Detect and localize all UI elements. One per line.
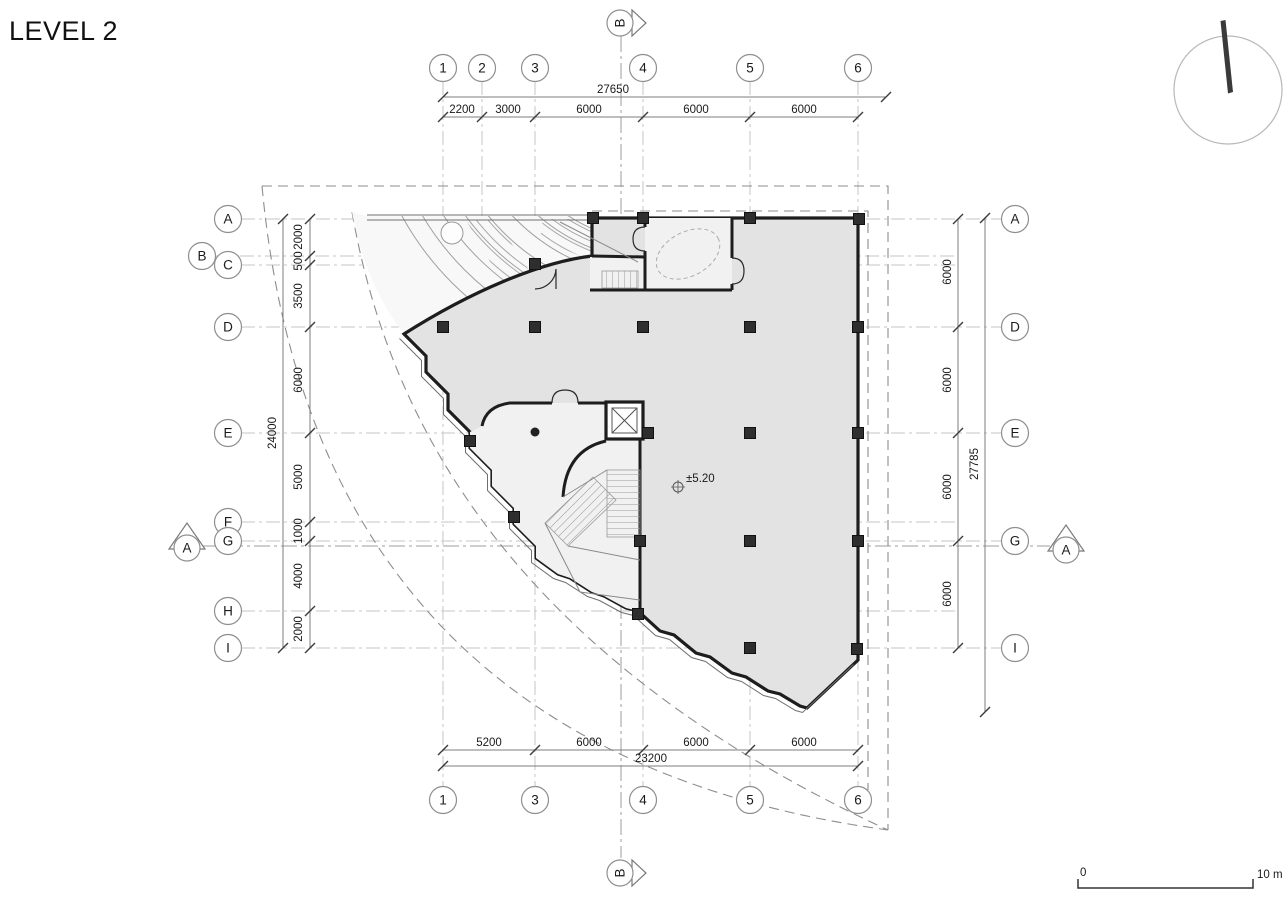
grid-bubble-right-I: I — [1002, 635, 1029, 662]
grid-bubble-right-E: E — [1002, 420, 1029, 447]
svg-text:6000: 6000 — [942, 367, 954, 393]
section-marker-a-right: A — [1048, 525, 1084, 563]
level-value: ±5.20 — [686, 473, 715, 485]
grid-bubble-right-A: A — [1002, 206, 1029, 233]
terrace-column — [441, 222, 463, 244]
svg-text:500: 500 — [293, 251, 305, 270]
svg-text:6000: 6000 — [791, 104, 817, 116]
svg-text:1: 1 — [439, 61, 447, 76]
section-marker-a-left: A — [169, 523, 205, 561]
svg-text:E: E — [223, 426, 232, 441]
grid-bubble-left-H: H — [215, 598, 242, 625]
grid-bubble-top-3: 3 — [522, 55, 549, 82]
svg-text:6000: 6000 — [942, 259, 954, 285]
scale-zero: 0 — [1080, 867, 1086, 879]
svg-text:4000: 4000 — [293, 563, 305, 589]
svg-text:6: 6 — [854, 793, 862, 808]
grid-bubble-left-D: D — [215, 314, 242, 341]
scale-bar: 0 10 m — [1078, 867, 1283, 888]
svg-text:6000: 6000 — [683, 104, 709, 116]
svg-text:B: B — [613, 18, 628, 27]
svg-text:4: 4 — [639, 61, 647, 76]
elevator — [606, 402, 643, 439]
svg-text:A: A — [1061, 543, 1070, 558]
svg-text:A: A — [182, 541, 191, 556]
grid-bubble-bottom-6: 6 — [845, 787, 872, 814]
grid-bubble-right-D: D — [1002, 314, 1029, 341]
svg-text:6000: 6000 — [791, 737, 817, 749]
svg-text:E: E — [1010, 426, 1019, 441]
dim-right-overall: 27785 — [969, 448, 981, 480]
grid-bubble-top-5: 5 — [737, 55, 764, 82]
grid-bubble-top-2: 2 — [469, 55, 496, 82]
grid-bubble-bottom-1: 1 — [430, 787, 457, 814]
svg-text:5200: 5200 — [476, 737, 502, 749]
svg-text:B: B — [613, 868, 628, 877]
grid-bubble-left-A: A — [215, 206, 242, 233]
section-marker-b-top: B — [607, 10, 646, 36]
svg-text:5: 5 — [746, 61, 754, 76]
svg-text:6000: 6000 — [942, 581, 954, 607]
grid-bubble-top-1: 1 — [430, 55, 457, 82]
grid-bubble-bottom-3: 3 — [522, 787, 549, 814]
svg-text:H: H — [223, 604, 233, 619]
grid-bubble-bottom-4: 4 — [630, 787, 657, 814]
svg-text:B: B — [197, 249, 206, 264]
svg-text:6000: 6000 — [576, 737, 602, 749]
svg-text:4: 4 — [639, 793, 647, 808]
grid-bubble-top-6: 6 — [845, 55, 872, 82]
dim-bottom-overall: 23200 — [635, 753, 667, 765]
floor-plan-sheet: LEVEL 2 — [0, 0, 1287, 901]
scale-max: 10 m — [1257, 869, 1283, 881]
north-arrow-icon — [1174, 20, 1282, 144]
svg-text:6000: 6000 — [293, 367, 305, 393]
svg-text:A: A — [1010, 212, 1019, 227]
svg-text:5000: 5000 — [293, 464, 305, 490]
svg-text:3500: 3500 — [293, 283, 305, 309]
svg-text:6000: 6000 — [942, 474, 954, 500]
svg-text:3: 3 — [531, 793, 539, 808]
svg-text:6: 6 — [854, 61, 862, 76]
grid-bubble-bottom-5: 5 — [737, 787, 764, 814]
grid-bubble-right-G: G — [1002, 528, 1029, 555]
svg-text:6000: 6000 — [683, 737, 709, 749]
grid-bubble-left-B: B — [189, 243, 216, 270]
svg-text:2000: 2000 — [293, 616, 305, 642]
svg-text:1000: 1000 — [293, 518, 305, 544]
svg-text:2200: 2200 — [449, 104, 475, 116]
dim-top-overall: 27650 — [597, 84, 629, 96]
dim-left-overall: 24000 — [267, 417, 279, 449]
svg-text:I: I — [1013, 641, 1017, 656]
svg-text:G: G — [223, 534, 234, 549]
round-column — [531, 428, 540, 437]
grid-bubble-left-I: I — [215, 635, 242, 662]
svg-text:D: D — [1010, 320, 1020, 335]
svg-text:3000: 3000 — [495, 104, 521, 116]
svg-text:C: C — [223, 258, 233, 273]
page-title: LEVEL 2 — [9, 16, 118, 47]
svg-text:5: 5 — [746, 793, 754, 808]
svg-text:I: I — [226, 641, 230, 656]
grid-bubble-top-4: 4 — [630, 55, 657, 82]
grid-bubble-left-E: E — [215, 420, 242, 447]
svg-text:6000: 6000 — [576, 104, 602, 116]
svg-text:D: D — [223, 320, 233, 335]
svg-text:2: 2 — [478, 61, 486, 76]
svg-text:G: G — [1010, 534, 1021, 549]
svg-text:3: 3 — [531, 61, 539, 76]
svg-text:A: A — [223, 212, 232, 227]
section-marker-b-bottom: B — [607, 860, 646, 886]
svg-text:2000: 2000 — [293, 224, 305, 250]
svg-text:1: 1 — [439, 793, 447, 808]
grid-bubble-left-G: G — [215, 528, 242, 555]
grid-bubble-left-C: C — [215, 252, 242, 279]
floor-plan-drawing: ±5.20 27650 2200 3000 6000 6000 6000 — [0, 0, 1287, 901]
